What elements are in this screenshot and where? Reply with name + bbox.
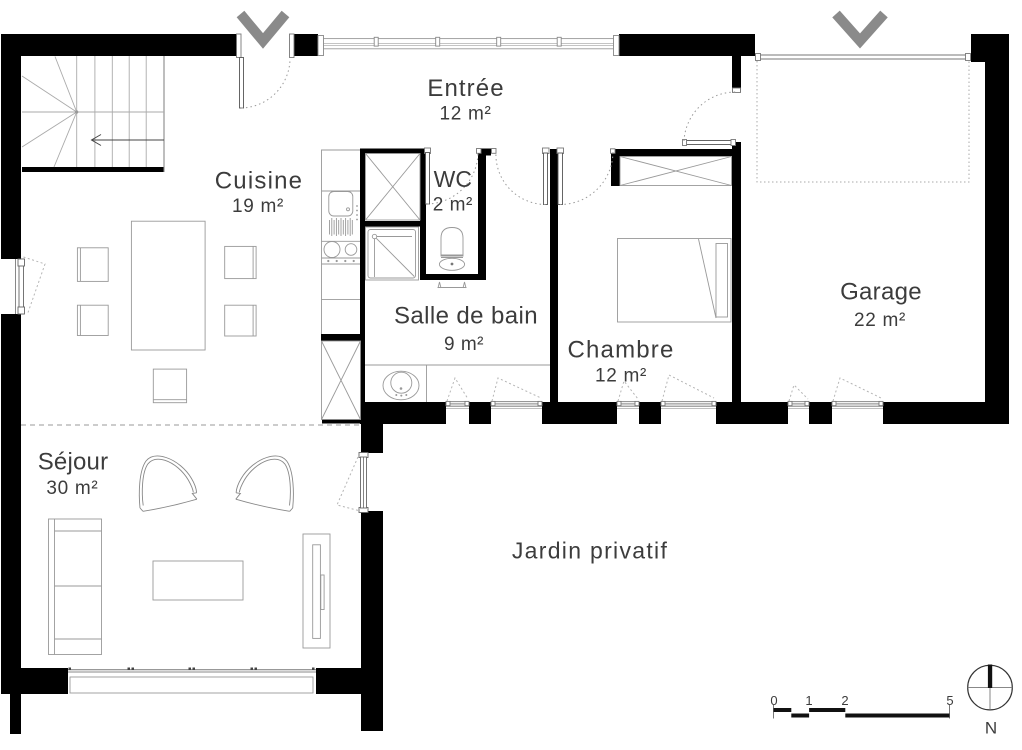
svg-text:Entrée: Entrée bbox=[427, 75, 504, 102]
svg-text:Jardin privatif: Jardin privatif bbox=[512, 538, 668, 564]
svg-text:0: 0 bbox=[770, 693, 777, 708]
svg-text:22 m²: 22 m² bbox=[854, 310, 906, 331]
svg-text:2 m²: 2 m² bbox=[433, 195, 473, 216]
svg-text:N: N bbox=[985, 719, 997, 738]
svg-text:30 m²: 30 m² bbox=[46, 478, 98, 499]
svg-text:WC: WC bbox=[434, 166, 472, 192]
svg-text:Salle de bain: Salle de bain bbox=[394, 303, 538, 330]
svg-text:Cuisine: Cuisine bbox=[215, 168, 303, 195]
svg-text:12 m²: 12 m² bbox=[439, 104, 491, 125]
svg-text:19 m²: 19 m² bbox=[232, 196, 284, 217]
svg-text:Séjour: Séjour bbox=[38, 449, 109, 476]
svg-text:9 m²: 9 m² bbox=[444, 334, 484, 355]
svg-text:5: 5 bbox=[946, 693, 953, 708]
svg-text:1: 1 bbox=[805, 693, 812, 708]
svg-text:12 m²: 12 m² bbox=[595, 366, 647, 387]
svg-text:Chambre: Chambre bbox=[567, 337, 674, 364]
svg-text:2: 2 bbox=[841, 693, 848, 708]
svg-text:Garage: Garage bbox=[840, 279, 922, 306]
